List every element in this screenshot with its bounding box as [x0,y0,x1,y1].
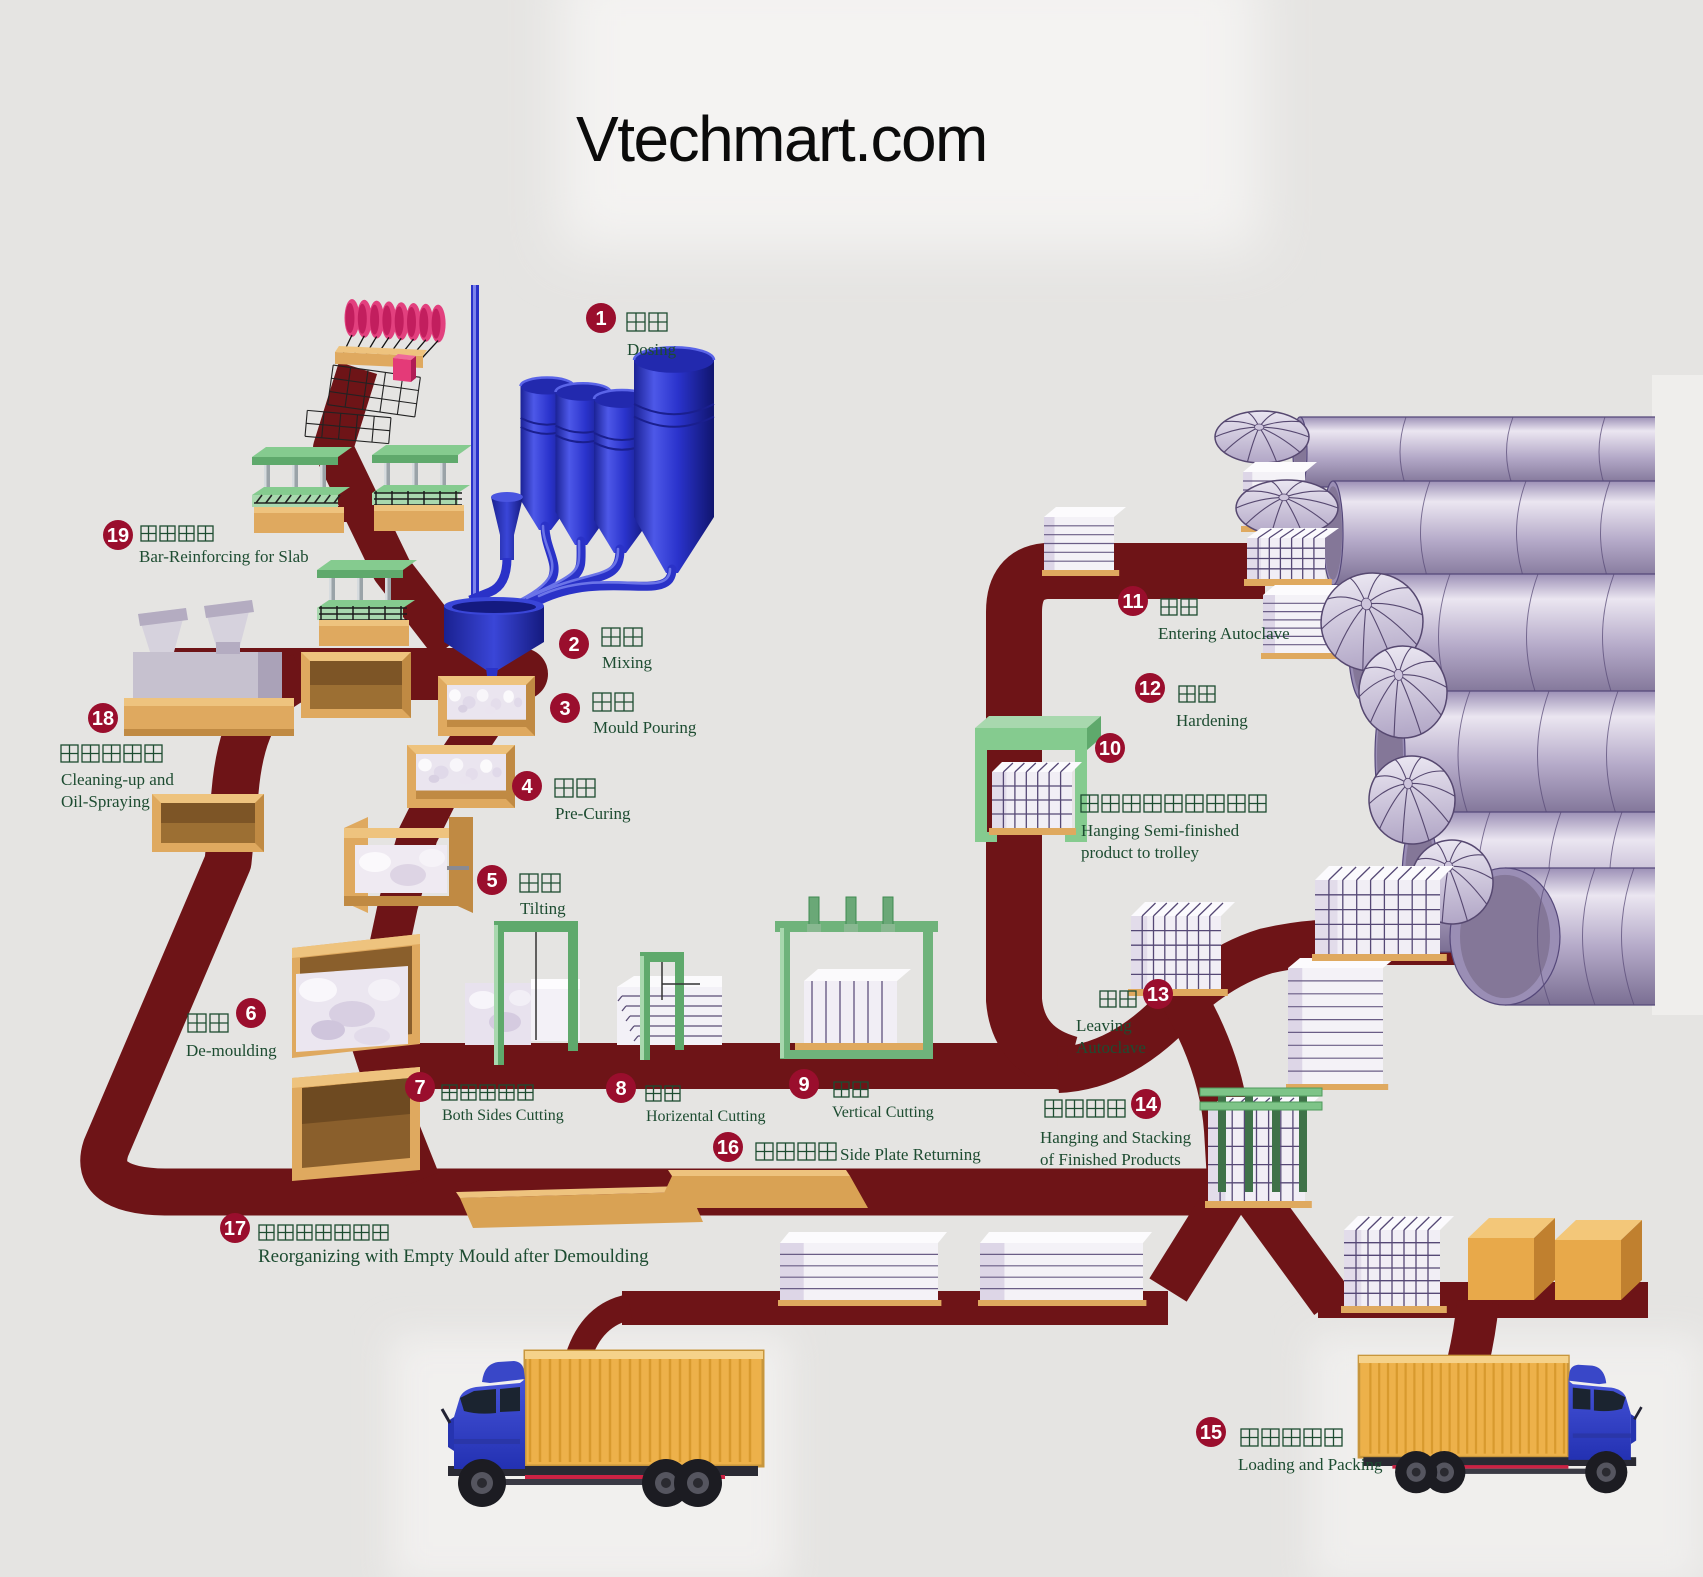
svg-text:15: 15 [1200,1422,1222,1444]
svg-text:9: 9 [798,1074,809,1096]
svg-text:Tilting: Tilting [520,899,566,918]
svg-text:De-moulding: De-moulding [186,1041,277,1060]
svg-text:Hanging Semi-finished: Hanging Semi-finished [1081,821,1240,840]
svg-text:18: 18 [92,708,114,730]
svg-text:12: 12 [1139,678,1161,700]
svg-text:8: 8 [615,1078,626,1100]
svg-text:Horizental Cutting: Horizental Cutting [646,1108,766,1125]
svg-text:19: 19 [107,525,129,547]
svg-text:Hardening: Hardening [1176,711,1248,730]
svg-text:14: 14 [1135,1094,1158,1116]
svg-text:Oil-Spraying: Oil-Spraying [61,792,150,811]
svg-text:Dosing: Dosing [627,340,677,359]
svg-text:2: 2 [568,634,579,656]
svg-text:3: 3 [559,698,570,720]
svg-text:10: 10 [1099,738,1121,760]
svg-text:Mould Pouring: Mould Pouring [593,718,697,737]
svg-text:Pre-Curing: Pre-Curing [555,804,631,823]
svg-text:Reorganizing with Empty Mould: Reorganizing with Empty Mould after Demo… [258,1246,649,1267]
svg-text:16: 16 [717,1137,739,1159]
svg-text:6: 6 [245,1003,256,1025]
svg-text:13: 13 [1147,984,1169,1006]
svg-text:Side Plate Returning: Side Plate Returning [840,1145,981,1164]
svg-text:4: 4 [521,776,533,798]
svg-text:Entering Autoclave: Entering Autoclave [1158,624,1290,643]
svg-text:Mixing: Mixing [602,653,653,672]
svg-text:Vertical Cutting: Vertical Cutting [832,1104,934,1121]
svg-text:of Finished Products: of Finished Products [1040,1150,1181,1169]
svg-text:product to trolley: product to trolley [1081,843,1200,862]
svg-text:Leaving: Leaving [1076,1016,1132,1035]
svg-text:11: 11 [1122,591,1143,613]
svg-text:7: 7 [414,1077,425,1099]
svg-text:Loading and Packing: Loading and Packing [1238,1455,1383,1474]
svg-text:Bar-Reinforcing for Slab: Bar-Reinforcing for Slab [139,547,309,566]
svg-text:5: 5 [486,870,497,892]
svg-text:1: 1 [595,308,606,330]
svg-text:Cleaning-up and: Cleaning-up and [61,770,174,789]
svg-text:Both Sides Cutting: Both Sides Cutting [442,1107,564,1124]
svg-text:Autoclave: Autoclave [1076,1038,1146,1057]
svg-text:Hanging and Stacking: Hanging and Stacking [1040,1128,1192,1147]
svg-text:Vtechmart.com: Vtechmart.com [576,103,987,175]
svg-text:17: 17 [224,1218,246,1240]
